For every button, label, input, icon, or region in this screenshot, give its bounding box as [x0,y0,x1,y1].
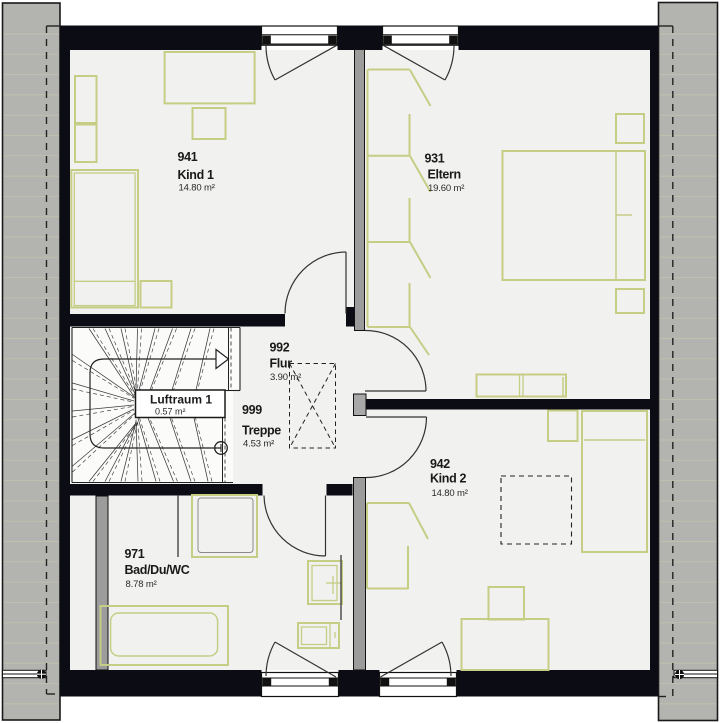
svg-text:941: 941 [178,150,198,164]
svg-text:19.60 m²: 19.60 m² [428,183,464,194]
svg-text:Kind 1: Kind 1 [178,168,214,182]
svg-text:931: 931 [425,152,445,166]
svg-text:Flur: Flur [270,356,293,370]
svg-text:Bad/Du/WC: Bad/Du/WC [125,563,190,577]
svg-text:Eltern: Eltern [428,168,461,182]
svg-text:0.57 m²: 0.57 m² [155,407,186,417]
svg-text:Kind 2: Kind 2 [430,472,466,486]
svg-text:4.53 m²: 4.53 m² [243,438,274,449]
svg-text:999: 999 [242,403,262,417]
svg-text:Treppe: Treppe [242,424,281,438]
svg-text:942: 942 [430,457,450,471]
svg-text:992: 992 [270,340,290,354]
svg-text:3.90 m²: 3.90 m² [270,372,301,383]
svg-text:8.78 m²: 8.78 m² [126,579,157,590]
svg-text:Luftraum 1: Luftraum 1 [150,393,212,407]
svg-text:14.80 m²: 14.80 m² [432,488,468,499]
svg-text:971: 971 [125,547,145,561]
svg-text:14.80 m²: 14.80 m² [179,183,215,194]
